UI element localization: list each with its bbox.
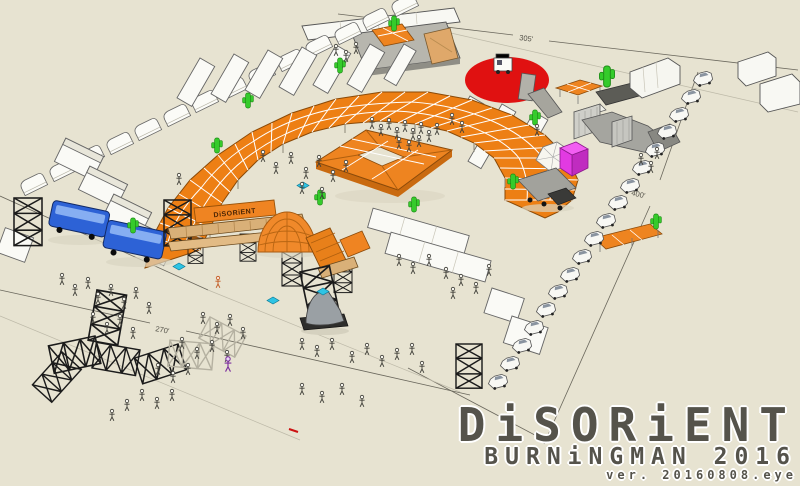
camper [133,117,162,141]
truss-tower [456,344,482,388]
cyan-object [267,297,279,304]
person [109,409,114,421]
person [473,282,478,294]
person [169,389,174,401]
gate-ramp [306,228,370,278]
person [386,118,391,130]
person [349,351,354,363]
person [426,130,431,142]
person [227,314,232,326]
parked-car [535,301,557,319]
parked-car [595,212,617,230]
person [170,371,175,383]
person [450,287,455,299]
person [329,338,334,350]
center-pavilion [316,130,452,203]
logo-title: DiSORiENT [458,404,797,446]
plaza-bottom-trailers [368,208,491,282]
art-car-on-circle [494,54,512,74]
cactus [599,66,614,87]
person [273,162,278,174]
cyan-object [173,263,185,270]
parked-car [668,106,690,124]
person [359,395,364,407]
person [409,343,414,355]
pink-container [560,142,588,176]
parked-car [571,248,593,266]
person-purple [225,357,232,372]
small-canopy-se [594,224,662,252]
dimension-label-bottom: 270' [155,324,171,336]
person [339,383,344,395]
person [319,391,324,403]
parked-car [692,70,714,88]
camper [105,131,134,155]
camper [19,172,48,196]
person [443,267,448,279]
person [288,152,293,164]
parked-car [607,194,629,212]
person [154,397,159,409]
person [130,327,135,339]
disorient-logo: DiSORiENT BURNiNGMAN 2016 ver. 20160808.… [458,404,797,482]
purple-dancer [225,357,232,372]
truss-segment-ghost [199,317,246,357]
parked-car [583,230,605,248]
person [124,399,129,411]
logo-version: ver. 20160808.eye [458,470,797,481]
right-stage-complex [574,81,680,154]
person [314,345,319,357]
cactus [212,138,223,153]
parked-car [487,373,509,391]
person [133,287,138,299]
person [458,274,463,286]
shark-art-car [300,291,349,335]
cactus [243,93,254,108]
ground-line-2 [0,316,300,440]
person [176,173,181,185]
red-ground-mark [289,429,298,432]
person [85,277,90,289]
person [410,128,415,140]
person [419,361,424,373]
person [72,284,77,296]
parked-car [499,355,521,373]
person [369,117,374,129]
person [394,348,399,360]
parked-car [559,266,581,284]
small-canopy-ne [556,80,602,104]
person [303,167,308,179]
camper [162,103,191,127]
person-orange [215,276,220,288]
parked-car [547,283,569,301]
parked-car [680,88,702,106]
person [146,302,151,314]
sketchup-viewport: 305' 400' 270' [0,0,800,486]
person [364,343,369,355]
person [299,383,304,395]
person [299,338,304,350]
person [396,254,401,265]
person [200,312,205,324]
person [59,273,64,285]
truss-segment [32,352,81,402]
logo-subtitle: BURNiNGMAN 2016 [458,447,797,468]
right-big-boxes [630,52,800,112]
dimension-label-top: 305' [519,33,535,44]
orange-figure [215,276,220,288]
person [104,322,109,334]
person [330,170,335,182]
person [410,262,415,274]
truss-sculpture [32,290,246,402]
person [418,122,423,134]
person [402,120,407,132]
person [108,284,113,296]
person [139,389,144,401]
